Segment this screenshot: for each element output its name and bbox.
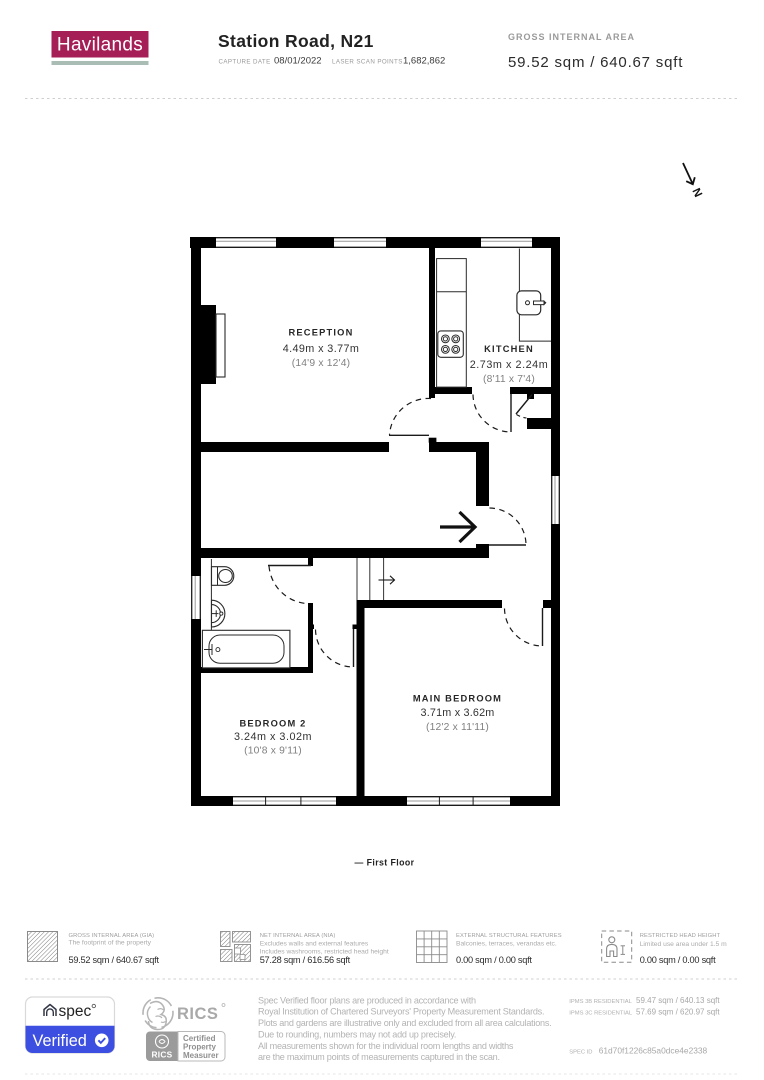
- svg-text:SPEC ID: SPEC ID: [569, 1049, 592, 1055]
- svg-text:Excludes walls and external fe: Excludes walls and external features: [260, 941, 369, 948]
- svg-text:GROSS INTERNAL AREA: GROSS INTERNAL AREA: [508, 32, 635, 42]
- svg-text:0.00 sqm / 0.00 sqft: 0.00 sqm / 0.00 sqft: [456, 955, 532, 965]
- svg-text:NET INTERNAL AREA (NIA): NET INTERNAL AREA (NIA): [260, 933, 336, 939]
- svg-text:RICS: RICS: [177, 1005, 218, 1023]
- svg-text:RICS: RICS: [151, 1050, 172, 1060]
- svg-text:(8'11 x 7'4): (8'11 x 7'4): [483, 374, 535, 385]
- svg-text:1,682,862: 1,682,862: [403, 56, 445, 67]
- svg-text:(12'2 x 11'11): (12'2 x 11'11): [426, 722, 489, 733]
- svg-text:IPMS 3C RESIDENTIAL: IPMS 3C RESIDENTIAL: [569, 1010, 633, 1016]
- svg-text:08/01/2022: 08/01/2022: [274, 56, 322, 67]
- svg-text:3.71m x 3.62m: 3.71m x 3.62m: [420, 707, 494, 719]
- svg-text:Balconies, terraces, verandas: Balconies, terraces, verandas etc.: [456, 941, 557, 948]
- svg-text:59.52 sqm / 640.67 sqft: 59.52 sqm / 640.67 sqft: [69, 955, 160, 965]
- svg-text:Plots and gardens are illustra: Plots and gardens are illustrative only …: [258, 1018, 551, 1028]
- svg-text:(14'9 x 12'4): (14'9 x 12'4): [292, 358, 351, 369]
- svg-text:The footprint of the property: The footprint of the property: [69, 940, 152, 947]
- svg-text:spec: spec: [59, 1003, 92, 1020]
- svg-text:Royal Institution of Chartered: Royal Institution of Chartered Surveyors…: [258, 1007, 544, 1017]
- svg-text:3.24m x 3.02m: 3.24m x 3.02m: [234, 731, 312, 743]
- svg-text:61d70f1226c85a0dce4e2338: 61d70f1226c85a0dce4e2338: [599, 1045, 708, 1055]
- svg-text:57.69 sqm / 620.97 sqft: 57.69 sqm / 620.97 sqft: [636, 1007, 720, 1016]
- svg-text:Verified: Verified: [33, 1032, 87, 1050]
- svg-text:Due to rounding, numbers may n: Due to rounding, numbers may not add up …: [258, 1030, 456, 1040]
- svg-text:0.00 sqm / 0.00 sqft: 0.00 sqm / 0.00 sqft: [640, 955, 716, 965]
- svg-text:— First Floor: — First Floor: [355, 858, 415, 868]
- svg-text:Measurer: Measurer: [183, 1051, 219, 1060]
- svg-text:59.52 sqm / 640.67 sqft: 59.52 sqm / 640.67 sqft: [508, 54, 683, 71]
- svg-text:2.73m x 2.24m: 2.73m x 2.24m: [470, 359, 549, 371]
- svg-text:Station Road, N21: Station Road, N21: [218, 31, 374, 51]
- svg-text:57.28 sqm / 616.56 sqft: 57.28 sqm / 616.56 sqft: [260, 955, 351, 965]
- svg-text:are the maximum points of meas: are the maximum points of measurements c…: [258, 1052, 500, 1062]
- svg-text:BEDROOM 2: BEDROOM 2: [239, 718, 306, 728]
- svg-text:RECEPTION: RECEPTION: [288, 328, 353, 338]
- svg-text:GROSS INTERNAL AREA (GIA): GROSS INTERNAL AREA (GIA): [69, 933, 155, 939]
- svg-text:CAPTURE DATE: CAPTURE DATE: [219, 59, 271, 66]
- svg-text:IPMS 3B RESIDENTIAL: IPMS 3B RESIDENTIAL: [569, 999, 632, 1005]
- svg-text:Havilands: Havilands: [57, 35, 143, 56]
- svg-text:LASER SCAN POINTS: LASER SCAN POINTS: [332, 59, 403, 66]
- svg-text:Spec Verified floor plans are: Spec Verified floor plans are produced i…: [258, 995, 476, 1005]
- svg-text:All measurements shown for the: All measurements shown for the individua…: [258, 1041, 514, 1051]
- svg-text:EXTERNAL STRUCTURAL FEATURES: EXTERNAL STRUCTURAL FEATURES: [456, 933, 562, 939]
- svg-text:(10'8 x 9'11): (10'8 x 9'11): [244, 746, 302, 757]
- svg-text:Limited use area under 1.5 m: Limited use area under 1.5 m: [640, 941, 727, 948]
- svg-text:RESTRICTED HEAD HEIGHT: RESTRICTED HEAD HEIGHT: [640, 933, 721, 939]
- svg-text:KITCHEN: KITCHEN: [484, 344, 534, 354]
- svg-text:59.47 sqm / 640.13 sqft: 59.47 sqm / 640.13 sqft: [636, 996, 720, 1005]
- svg-text:MAIN BEDROOM: MAIN BEDROOM: [413, 694, 502, 704]
- svg-text:4.49m x 3.77m: 4.49m x 3.77m: [283, 343, 360, 355]
